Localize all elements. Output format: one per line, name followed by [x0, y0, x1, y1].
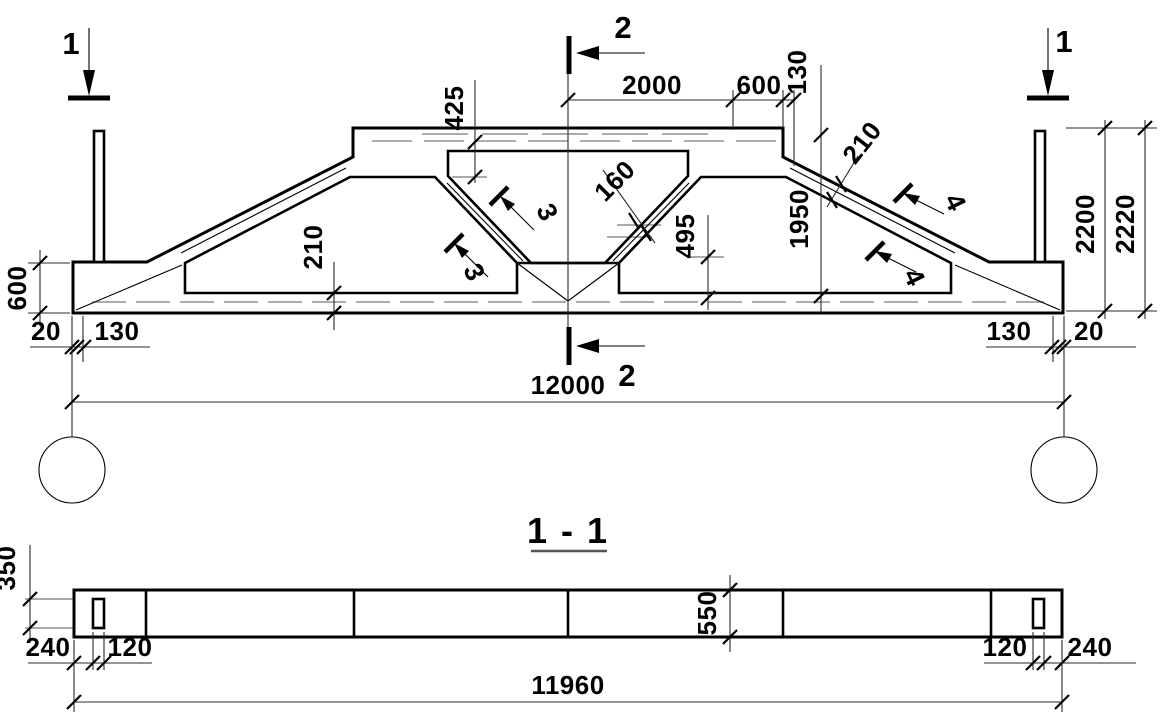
- dim-20-left: 20: [31, 316, 61, 346]
- grid-axis-circle-left: [39, 437, 105, 503]
- right-end-stub: [1035, 131, 1045, 262]
- marker-stem: [507, 203, 534, 230]
- section-marker-1-right: 1: [1027, 24, 1073, 98]
- cut-label-1-right: 1: [1055, 24, 1072, 59]
- section-marker-4-lower: 4: [866, 242, 931, 290]
- cut-label-1-left: 1: [62, 26, 79, 61]
- dim-11960: 11960: [531, 670, 604, 700]
- truss-drawing: 2000 600 130 425 160 495 210: [0, 0, 1161, 718]
- marker-arrow-down-icon: [83, 70, 95, 96]
- cut-label-3-upper: 3: [530, 199, 564, 226]
- cut-label-2-top: 2: [614, 10, 631, 45]
- elevation-view: 2000 600 130 425 160 495 210: [2, 10, 1157, 503]
- dim-120-right: 120: [983, 632, 1028, 662]
- section-view-1-1: 1 - 1 350 240 120 120 240: [0, 510, 1136, 712]
- section-marker-2-top: 2: [569, 10, 645, 74]
- dim-12000: 12000: [531, 370, 606, 400]
- dim-2200: 2200: [1070, 194, 1100, 254]
- drawing-sheet: 2000 600 130 425 160 495 210: [0, 0, 1161, 718]
- cut-label-4-upper: 4: [938, 189, 972, 216]
- dim-550: 550: [692, 591, 722, 636]
- dim-120-left: 120: [108, 632, 153, 662]
- dim-600-top: 600: [737, 70, 782, 100]
- marker-arrow-icon: [903, 193, 920, 205]
- section-marker-4-upper: 4: [894, 184, 972, 215]
- dim-210-bottom: 210: [298, 225, 328, 270]
- dim-425: 425: [439, 86, 469, 131]
- marker-arrow-left-icon: [576, 339, 599, 353]
- dim-2220: 2220: [1110, 194, 1140, 254]
- marker-arrow-left-icon: [576, 46, 599, 60]
- section-marker-3-lower: 3: [445, 234, 491, 285]
- tick: [629, 213, 639, 229]
- marker-arrow-icon: [875, 251, 892, 263]
- center-block-v-left: [517, 263, 568, 301]
- section-marker-3-upper: 3: [490, 187, 564, 230]
- cut-label-4-lower: 4: [897, 264, 931, 291]
- center-block-v-right: [568, 263, 619, 301]
- right-block-diagonal: [955, 265, 1060, 310]
- dim-350: 350: [0, 546, 21, 591]
- dim-2000: 2000: [622, 70, 682, 100]
- dim-130-left: 130: [95, 316, 140, 346]
- dim-210-chord: 210: [836, 116, 887, 170]
- left-end-stub: [94, 131, 104, 262]
- dim-130-top: 130: [782, 50, 812, 95]
- dim-20-right: 20: [1074, 316, 1104, 346]
- section-title: 1 - 1: [527, 510, 609, 551]
- dim-240-left: 240: [26, 632, 71, 662]
- right-chord-axis: [790, 168, 955, 253]
- left-block-diagonal: [76, 265, 182, 310]
- dim-600-end: 600: [2, 266, 32, 311]
- marker-arrow-down-icon: [1042, 70, 1054, 96]
- dim-160: 160: [588, 154, 641, 207]
- dim-1950: 1950: [784, 189, 814, 249]
- cut-label-2-bottom: 2: [618, 358, 635, 393]
- dim-130-right: 130: [987, 316, 1032, 346]
- dim-240-right: 240: [1068, 632, 1113, 662]
- grid-axis-circle-right: [1031, 437, 1097, 503]
- dim-495: 495: [670, 214, 700, 259]
- cut-label-3-lower: 3: [457, 259, 491, 286]
- right-hole: [1033, 599, 1044, 628]
- left-hole: [93, 599, 104, 628]
- section-marker-1-left: 1: [62, 26, 110, 98]
- dimension-lines: 2000 600 130 425 160 495 210: [2, 50, 1157, 503]
